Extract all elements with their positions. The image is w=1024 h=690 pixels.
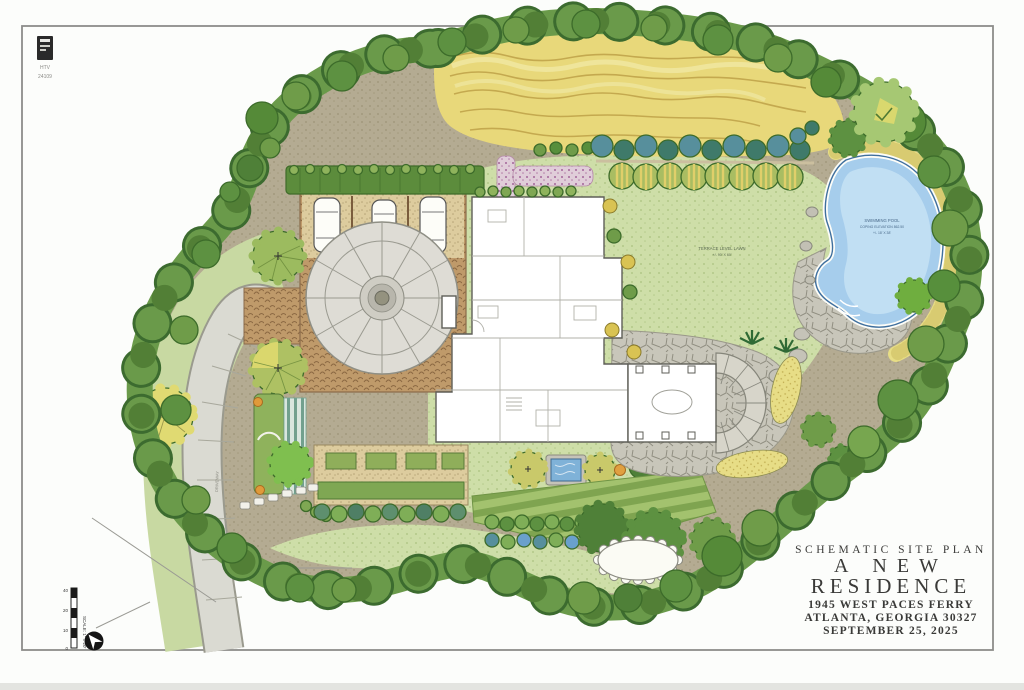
- plan-date: SEPTEMBER 25, 2025: [823, 625, 959, 637]
- entry-porch: [442, 296, 456, 328]
- auto-court: [300, 192, 466, 392]
- architect-stamp: HTV 24109: [37, 36, 53, 80]
- specimen-tree: [252, 342, 304, 394]
- specimen-tree: [253, 231, 303, 281]
- stamp-firm: HTV: [40, 65, 51, 71]
- shrub-row: [314, 504, 466, 522]
- scale-tick: 20: [63, 608, 69, 613]
- loggia-wing: [628, 364, 716, 442]
- scale-tick: 10: [63, 628, 69, 633]
- cobble-apron: [244, 288, 304, 344]
- pool-label-line1: SWIMMING POOL: [864, 218, 900, 223]
- scale-tick: 40: [63, 588, 69, 593]
- address-line1: 1945 WEST PACES FERRY: [808, 599, 974, 611]
- driveway-label: DRIVEWAY: [214, 471, 220, 492]
- deck-tree: [898, 280, 930, 312]
- canopy-tree: [803, 415, 833, 445]
- stamp-number: 24109: [38, 74, 52, 80]
- svg-text:+/- 90' X 60': +/- 90' X 60': [712, 253, 731, 257]
- scanned-site-plan-sheet: HTV 24109: [0, 0, 1024, 690]
- fountain-basin: [551, 459, 581, 481]
- title-line2: RESIDENCE: [811, 574, 972, 598]
- garden-hedge: [318, 482, 464, 499]
- address-line2: ATLANTA, GEORGIA 30327: [804, 612, 977, 624]
- fountain: [375, 291, 389, 305]
- motor-court-circle: [306, 222, 458, 374]
- pool-label-line2: COPING ELEVATION 862.50: [860, 225, 904, 229]
- large-specimen-tree: [854, 82, 914, 142]
- site-plan-drawing: HTV 24109: [0, 0, 1024, 690]
- paper-edge-shadow: [0, 683, 1024, 690]
- golden-tree: [511, 452, 545, 486]
- parking-hedge: [286, 165, 484, 195]
- svg-text:TERRACE LEVEL LAWN: TERRACE LEVEL LAWN: [698, 246, 745, 251]
- pool-label-line3: +/- 18' X 38': [873, 231, 891, 235]
- bright-tree: [270, 444, 310, 484]
